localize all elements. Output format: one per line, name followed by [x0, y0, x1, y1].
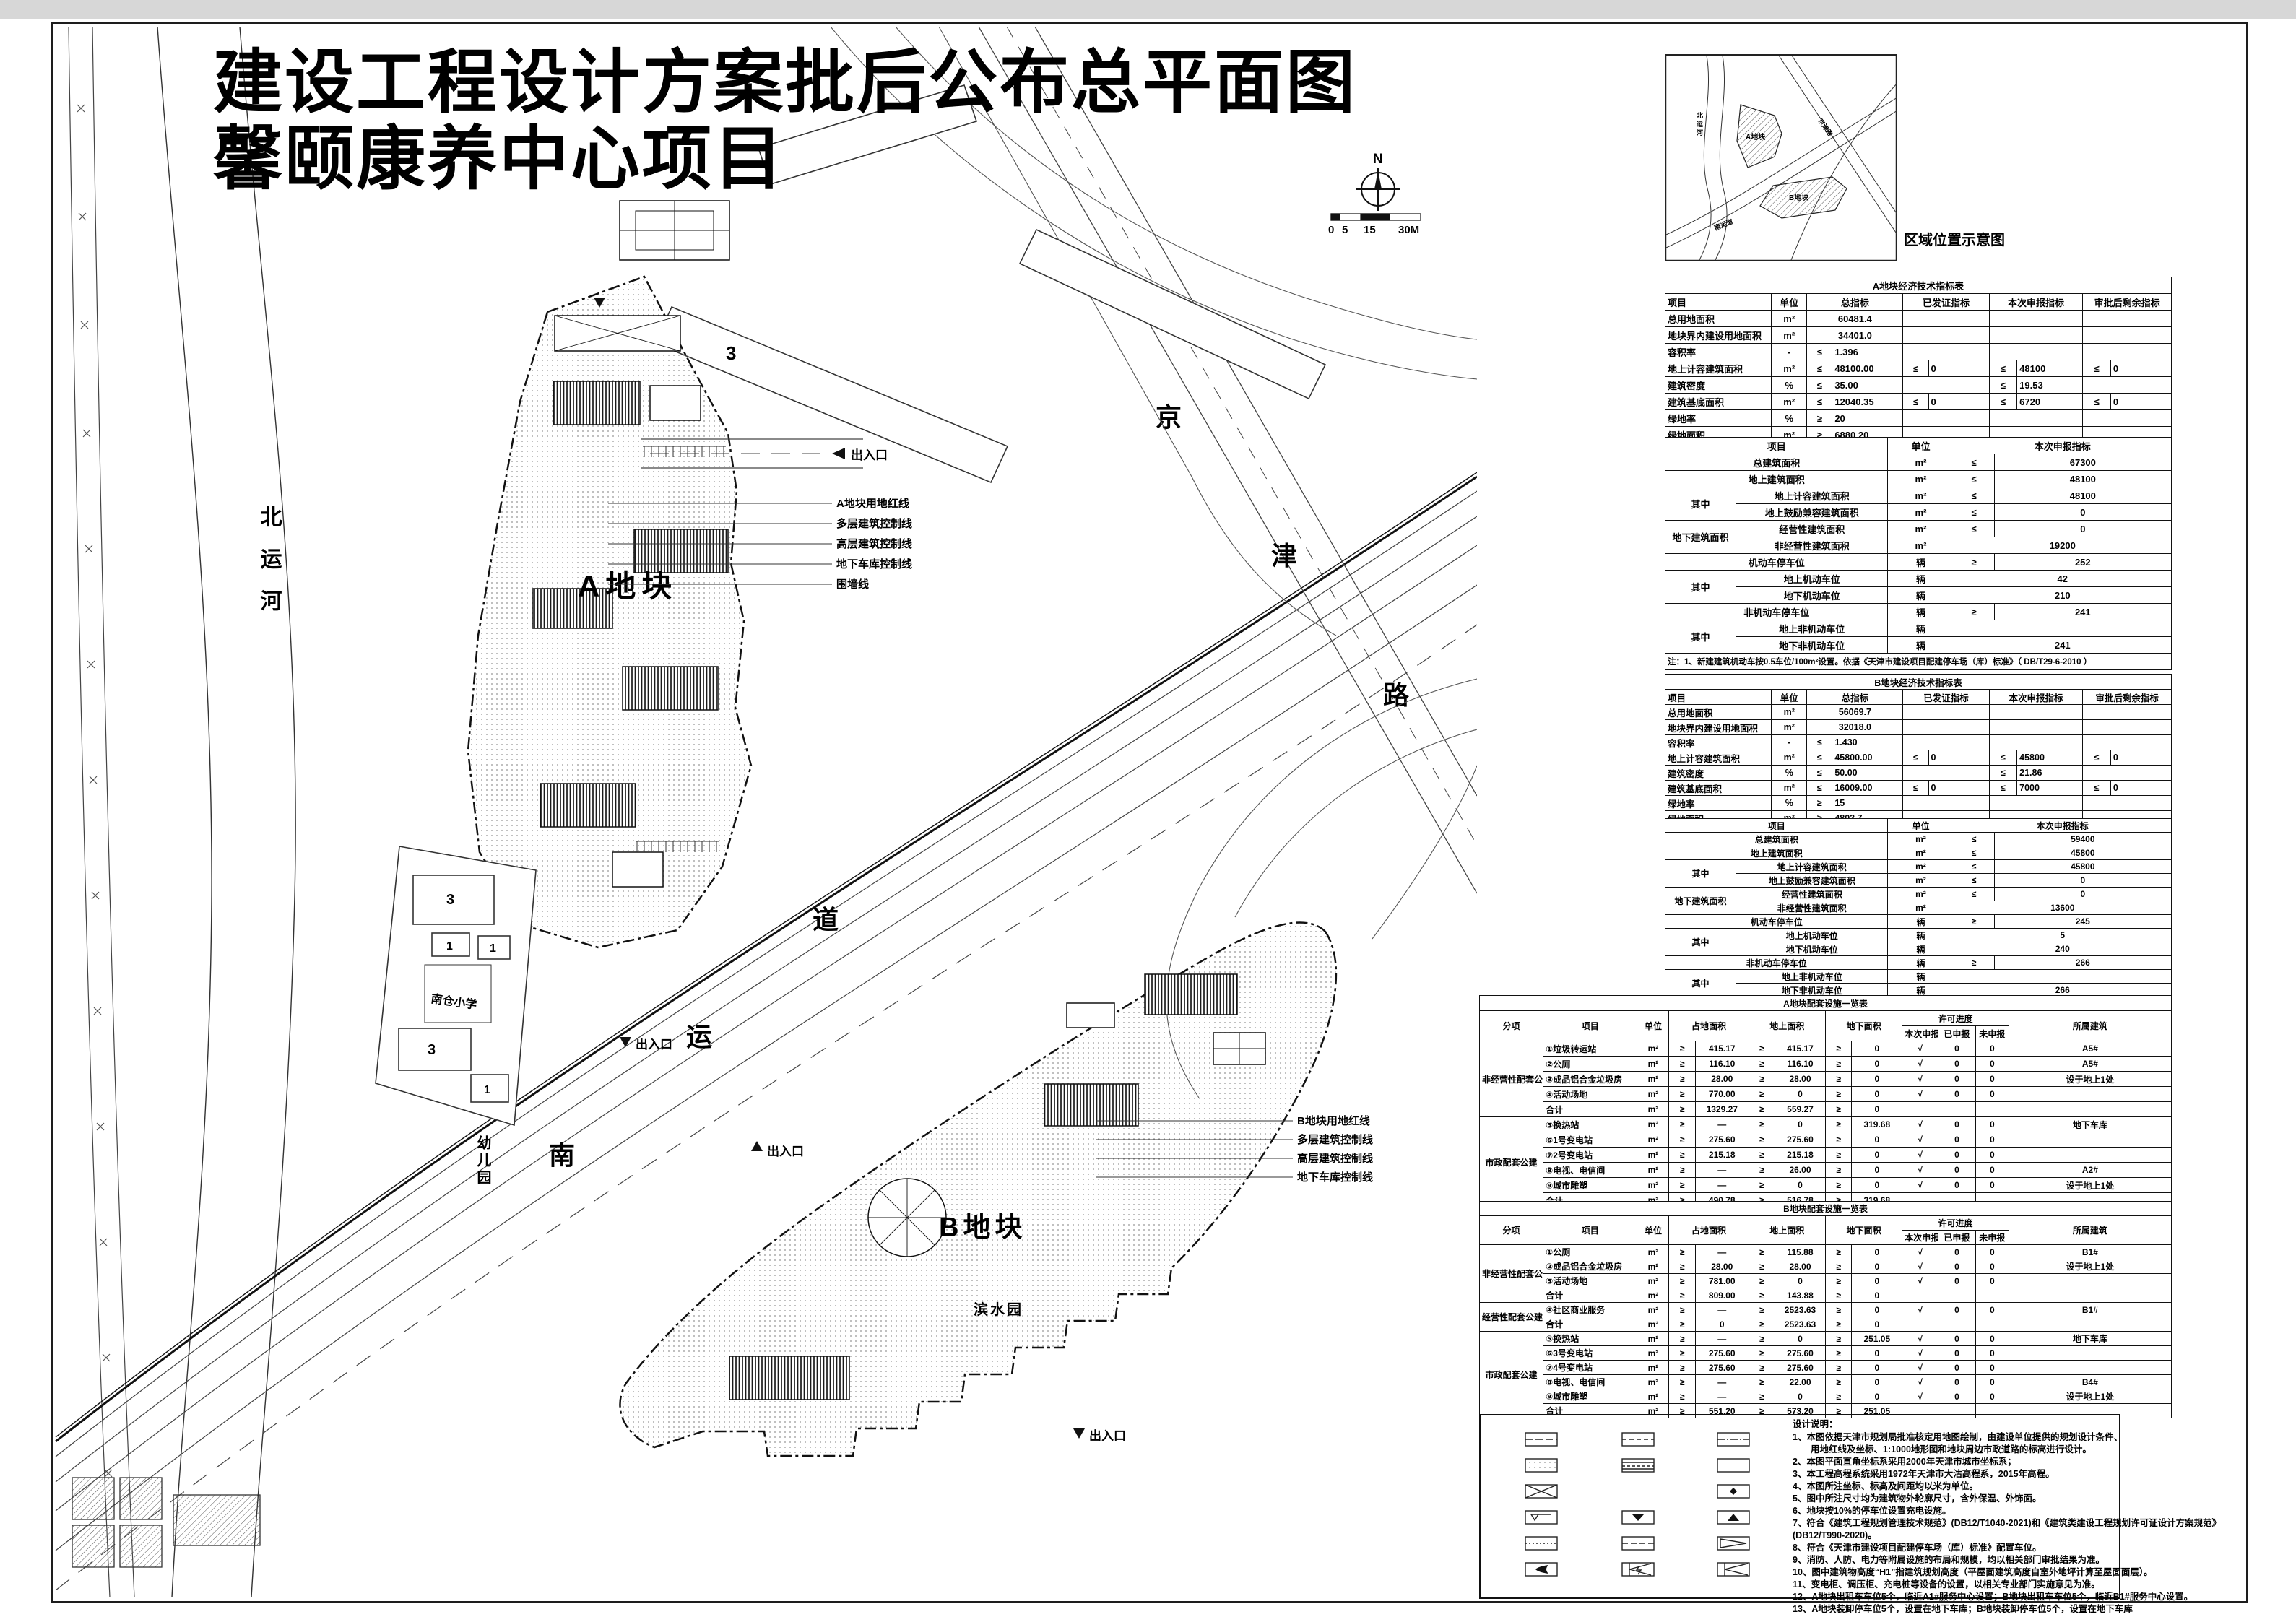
- cell: 地下机动车位: [1736, 587, 1888, 604]
- cell: ≥: [1669, 1346, 1695, 1361]
- cell: 0: [1852, 1346, 1902, 1361]
- cell: 0: [1975, 1178, 2009, 1193]
- cell: 0: [1928, 750, 1989, 766]
- cell: 0: [1975, 1259, 2009, 1274]
- cell: 0: [1975, 1148, 2009, 1163]
- cell: 0: [1852, 1361, 1902, 1375]
- cell: [2083, 327, 2172, 344]
- legend: [1488, 1426, 1791, 1590]
- cell: ≥: [1669, 1274, 1695, 1288]
- cell: 275.60: [1775, 1132, 1826, 1148]
- legend-flag-marker: [1525, 1511, 1557, 1524]
- cell: 0: [2110, 750, 2171, 766]
- cell: ≥: [1749, 1274, 1775, 1288]
- cell: 0: [1975, 1346, 2009, 1361]
- cell: [1903, 766, 1989, 781]
- cell: ≤: [2083, 394, 2111, 410]
- cell: 20: [1832, 410, 1903, 427]
- cell: 28.00: [1775, 1259, 1826, 1274]
- table-row: B地块经济技术指标表: [1665, 675, 2172, 690]
- cell: 注：1、新建建筑机动车按0.5车位/100m²设置。依据《天津市建设项目配建停车…: [1665, 654, 2172, 670]
- cell: 容积率: [1665, 735, 1772, 750]
- entrance-arrow: [620, 1037, 631, 1047]
- table-b-facilities: B地块配套设施一览表分项项目单位占地面积地上面积地下面积许可进度所属建筑本次申报…: [1479, 1201, 2172, 1418]
- header-cell: 单位: [1637, 1011, 1669, 1041]
- cell: ≤: [2083, 781, 2111, 796]
- cell: 其中: [1665, 970, 1736, 997]
- scale-tick: 30M: [1398, 224, 1419, 236]
- cell: [1903, 311, 1989, 327]
- cell: ⑦2号变电站: [1543, 1148, 1637, 1163]
- cell: [1903, 720, 1989, 735]
- cell: ≥: [1669, 1245, 1695, 1259]
- cell: ≥: [1749, 1178, 1775, 1193]
- cell: m²: [1772, 394, 1807, 410]
- cell: ≤: [1903, 781, 1928, 796]
- cell: 67300: [1994, 454, 2171, 471]
- cell: ≥: [1749, 1389, 1775, 1404]
- road-nanyun-char: 运: [686, 1022, 712, 1051]
- header-cell: 本次申报: [1902, 1231, 1938, 1245]
- cell: m²: [1888, 874, 1954, 888]
- cell: ≥: [1749, 1317, 1775, 1332]
- cell: 建筑密度: [1665, 766, 1772, 781]
- cell: ≥: [1825, 1245, 1851, 1259]
- cell: %: [1772, 796, 1807, 811]
- cell: ≥: [1669, 1375, 1695, 1389]
- table-row: 地下机动车位辆210: [1665, 587, 2172, 604]
- cell: m²: [1637, 1303, 1669, 1317]
- cell: [2009, 1274, 2171, 1288]
- cell: √: [1902, 1361, 1938, 1375]
- cell: 0: [1938, 1163, 1976, 1178]
- cell: 116.10: [1775, 1057, 1826, 1072]
- cell: ≥: [1825, 1274, 1851, 1288]
- cell: ≥: [1825, 1332, 1851, 1346]
- design-notes: 设计说明： 1、本图依据天津市规划局批准核定用地图绘制，由建设单位提供的规划设计…: [1793, 1418, 2240, 1616]
- cell: —: [1695, 1389, 1749, 1404]
- cell: ④活动场地: [1543, 1087, 1637, 1102]
- cell: ≥: [1749, 1346, 1775, 1361]
- school-building-no: 1: [484, 1084, 490, 1096]
- cell: m²: [1637, 1057, 1669, 1072]
- region-location-map: A地块 B地块 北运河 京津路 南运道: [1665, 54, 1897, 261]
- cell: m²: [1888, 846, 1954, 860]
- parcel-b-label: B地块: [939, 1213, 1026, 1243]
- cell: ⑥3号变电站: [1543, 1346, 1637, 1361]
- cell: 0: [1975, 1332, 2009, 1346]
- cell: 合计: [1543, 1102, 1637, 1117]
- header-cell: 本次申报指标: [1989, 690, 2083, 705]
- cell: ≤: [1807, 781, 1832, 796]
- entrance-label: 出入口: [767, 1144, 804, 1158]
- cell: 地块界内建设用地面积: [1665, 720, 1772, 735]
- cell: ≤: [1954, 860, 1994, 874]
- note-line: 9、消防、人防、电力等附属设施的布局和规模，均以相关部门审批结果为准。: [1793, 1554, 2240, 1566]
- cell: 设于地上1处: [2009, 1389, 2171, 1404]
- cell: m²: [1637, 1245, 1669, 1259]
- legend-dotted-line: [1525, 1537, 1557, 1550]
- drawing-sheet: { "header": { "title_line1": "建设工程设计方案批后…: [0, 0, 2296, 1622]
- cell: -: [1772, 735, 1807, 750]
- cell: m²: [1637, 1259, 1669, 1274]
- cell: 0: [1938, 1303, 1976, 1317]
- cell: ≤: [1903, 360, 1928, 377]
- title-line-2: 馨颐康养中心项目: [213, 121, 1357, 198]
- header-cell: 占地面积: [1669, 1011, 1749, 1041]
- cell: 辆: [1888, 587, 1954, 604]
- table-row: 地下非机动车位辆241: [1665, 637, 2172, 654]
- cell: 35.00: [1832, 377, 1903, 394]
- table-row: 地上计容建筑面积m²≤45800.00≤0≤45800≤0: [1665, 750, 2172, 766]
- leader-label: 高层建筑控制线: [836, 537, 912, 550]
- table-row: A地块配套设施一览表: [1480, 996, 2172, 1011]
- river-label: 北运河: [257, 506, 282, 631]
- cell: 市政配套公建: [1480, 1117, 1543, 1208]
- table-row: 非经营性建筑面积m²19200: [1665, 537, 2172, 554]
- cell: 781.00: [1695, 1274, 1749, 1288]
- cell: 地上非机动车位: [1736, 620, 1888, 637]
- header-cell: 本次申报指标: [1954, 819, 2171, 833]
- cell: [1902, 1102, 1938, 1117]
- cell: [1938, 1317, 1976, 1332]
- cell: 0: [1938, 1087, 1976, 1102]
- table-row: ⑨城市雕塑m²≥—≥0≥0√00设于地上1处: [1480, 1389, 2172, 1404]
- leader-label: B地块用地红线: [1297, 1114, 1370, 1127]
- cell: ≥: [1669, 1041, 1695, 1057]
- cell: [1954, 620, 2171, 637]
- legend-plain-box: [1717, 1459, 1749, 1472]
- cell: 地上鼓励兼容建筑面积: [1736, 504, 1888, 521]
- scan-band: [0, 0, 2296, 19]
- table-row: 项目单位本次申报指标: [1665, 819, 2172, 833]
- cell: ≥: [1954, 554, 1994, 571]
- cell: 59400: [1994, 833, 2171, 846]
- header-cell: 分项: [1480, 1011, 1543, 1041]
- cell: A5#: [2009, 1041, 2171, 1057]
- cell: 0: [1975, 1389, 2009, 1404]
- cell: [1989, 311, 2083, 327]
- cell: 6720: [2017, 394, 2083, 410]
- note-line: 8、符合《天津市建设项目配建停车场（库）标准》配置车位。: [1793, 1542, 2240, 1554]
- cell: 28.00: [1695, 1072, 1749, 1087]
- cell: ≤: [1989, 766, 2017, 781]
- parcel-a-label: A地块: [578, 569, 677, 603]
- cell: 地块界内建设用地面积: [1665, 327, 1772, 344]
- road-nanyun-char: 道: [813, 905, 839, 934]
- cell: %: [1772, 410, 1807, 427]
- entrance-arrow: [832, 448, 845, 459]
- cell: 0: [1975, 1375, 2009, 1389]
- table-row: 建筑密度%≤50.00≤21.86: [1665, 766, 2172, 781]
- table-row: 地块界内建设用地面积m²32018.0: [1665, 720, 2172, 735]
- cell: [1903, 410, 1989, 427]
- cell: ≤: [1954, 471, 1994, 487]
- cell: 0: [1775, 1332, 1826, 1346]
- cell: m²: [1637, 1178, 1669, 1193]
- cell: [2009, 1288, 2171, 1303]
- cell: 建筑密度: [1665, 377, 1772, 394]
- table-row: ⑨城市雕塑m²≥—≥0≥0√00设于地上1处: [1480, 1178, 2172, 1193]
- cell: √: [1902, 1057, 1938, 1072]
- cell: 总用地面积: [1665, 705, 1772, 720]
- cell: 0: [1852, 1178, 1902, 1193]
- cell: m²: [1772, 327, 1807, 344]
- cell: [2083, 766, 2172, 781]
- cell: ≥: [1954, 604, 1994, 620]
- cell: 非经营性配套公建: [1480, 1245, 1543, 1303]
- cell: 地上计容建筑面积: [1736, 487, 1888, 504]
- cell: 0: [1975, 1245, 2009, 1259]
- cell: 48100: [2017, 360, 2083, 377]
- cell: 21.86: [2017, 766, 2083, 781]
- cell: [2083, 705, 2172, 720]
- cell: 48100: [1994, 471, 2171, 487]
- legend-boundary-solid-dash: [1525, 1433, 1557, 1446]
- cell: ≥: [1825, 1117, 1851, 1132]
- table-row: 合计m²≥809.00≥143.88≥0: [1480, 1288, 2172, 1303]
- cell: m²: [1888, 504, 1954, 521]
- header-cell: 已发证指标: [1903, 690, 1989, 705]
- road-nanyun-char: 南: [549, 1140, 575, 1170]
- cell: 设于地上1处: [2009, 1072, 2171, 1087]
- cell: 2523.63: [1775, 1317, 1826, 1332]
- cell: m²: [1888, 901, 1954, 915]
- cell: 0: [1938, 1178, 1976, 1193]
- cell: 非机动车停车位: [1665, 956, 1888, 970]
- cell: [1989, 344, 2083, 360]
- cell: 42: [1954, 571, 2171, 587]
- school-building-no: 1: [446, 940, 453, 953]
- cell: 其中: [1665, 620, 1736, 654]
- cell: ≥: [1825, 1072, 1851, 1087]
- cell: 559.27: [1775, 1102, 1826, 1117]
- north-label: N: [1373, 152, 1383, 167]
- cell: 115.88: [1775, 1245, 1826, 1259]
- cell: 辆: [1888, 554, 1954, 571]
- table-row: 分项项目单位占地面积地上面积地下面积许可进度所属建筑: [1480, 1216, 2172, 1231]
- cell: ≤: [1989, 394, 2017, 410]
- cell: 辆: [1888, 942, 1954, 956]
- table-row: 总用地面积m²60481.4: [1665, 311, 2172, 327]
- cell: ≥: [1749, 1332, 1775, 1346]
- cell: m²: [1888, 537, 1954, 554]
- table-row: 分项项目单位占地面积地上面积地下面积许可进度所属建筑: [1480, 1011, 2172, 1026]
- cell: [2083, 720, 2172, 735]
- cell: 0: [1852, 1288, 1902, 1303]
- cell: 275.60: [1695, 1361, 1749, 1375]
- region-map-frame: [1665, 55, 1897, 261]
- cell: 32018.0: [1807, 720, 1903, 735]
- cell: [2009, 1346, 2171, 1361]
- table-row: 地块界内建设用地面积m²34401.0: [1665, 327, 2172, 344]
- table-row: 其中地上计容建筑面积m²≤45800: [1665, 860, 2172, 874]
- table-row: 机动车停车位辆≥252: [1665, 554, 2172, 571]
- legend-cross-box: [1525, 1485, 1557, 1498]
- cell: ≥: [1825, 1132, 1851, 1148]
- cell: 45800: [2017, 750, 2083, 766]
- leader-label: 多层建筑控制线: [1297, 1133, 1373, 1146]
- cell: [1902, 1288, 1938, 1303]
- cell: 0: [1975, 1041, 2009, 1057]
- cell: ≥: [1825, 1288, 1851, 1303]
- cell: ≤: [1989, 750, 2017, 766]
- table-row: 建筑密度%≤35.00≤19.53: [1665, 377, 2172, 394]
- cell: 0: [1775, 1389, 1826, 1404]
- entrance-arrow: [751, 1141, 763, 1151]
- cell: 56069.7: [1807, 705, 1903, 720]
- cell: [2009, 1317, 2171, 1332]
- cell: m²: [1637, 1317, 1669, 1332]
- entrance-label: 出入口: [636, 1037, 672, 1051]
- cell: —: [1695, 1332, 1749, 1346]
- header-cell: 项目: [1665, 690, 1772, 705]
- cell: √: [1902, 1087, 1938, 1102]
- table-row: 非机动车停车位辆≥241: [1665, 604, 2172, 620]
- cell: ≥: [1825, 1389, 1851, 1404]
- cell: ≥: [1749, 1361, 1775, 1375]
- cell: m²: [1637, 1072, 1669, 1087]
- table-row: ⑦2号变电站m²≥215.18≥215.18≥0√00: [1480, 1148, 2172, 1163]
- header-cell: 总指标: [1807, 294, 1903, 311]
- cell: ③成品铝合金垃圾房: [1543, 1072, 1637, 1087]
- cell: ①公厕: [1543, 1245, 1637, 1259]
- note-line: 2、本图平面直角坐标系采用2000年天津市城市坐标系；: [1793, 1456, 2240, 1468]
- header-cell: 已发证指标: [1903, 294, 1989, 311]
- cell: 0: [1852, 1274, 1902, 1288]
- table-row: 市政配套公建⑤换热站m²≥—≥0≥251.05√00地下车库: [1480, 1332, 2172, 1346]
- cell: m²: [1772, 360, 1807, 377]
- cell: ⑧电视、电信间: [1543, 1375, 1637, 1389]
- table-row: 非经营性配套公建①垃圾转运站m²≥415.17≥415.17≥0√00A5#: [1480, 1041, 2172, 1057]
- header-cell: 所属建筑: [2009, 1216, 2171, 1245]
- cell: 0: [1928, 394, 1989, 410]
- table-row: 地上鼓励兼容建筑面积m²≤0: [1665, 504, 2172, 521]
- cell: ≤: [1954, 504, 1994, 521]
- cell: ≥: [1954, 956, 1994, 970]
- cell: 非机动车停车位: [1665, 604, 1888, 620]
- cell: 地上机动车位: [1736, 571, 1888, 587]
- cell: 28.00: [1695, 1259, 1749, 1274]
- legend-triangle-up: [1717, 1511, 1749, 1524]
- cell: 5: [1954, 929, 2171, 942]
- table-row: 总建筑面积m²≤67300: [1665, 454, 2172, 471]
- north-arrow-icon: [1356, 168, 1400, 211]
- cell: √: [1902, 1072, 1938, 1087]
- header-cell: B地块经济技术指标表: [1665, 675, 2172, 690]
- cell: ≥: [1749, 1041, 1775, 1057]
- table-row: 项目单位总指标已发证指标本次申报指标审批后剩余指标: [1665, 690, 2172, 705]
- cell: 0: [1975, 1361, 2009, 1375]
- cell: 0: [1975, 1072, 2009, 1087]
- cell: ≥: [1825, 1317, 1851, 1332]
- header-cell: 项目: [1543, 1216, 1637, 1245]
- cell: 12040.35: [1832, 394, 1903, 410]
- legend-boundary-dashdot: [1717, 1433, 1749, 1446]
- cell: [1903, 705, 1989, 720]
- entrance-arrow: [1073, 1428, 1085, 1439]
- cell: ⑧电视、电信间: [1543, 1163, 1637, 1178]
- cell: 0: [1695, 1317, 1749, 1332]
- header-cell: 单位: [1772, 690, 1807, 705]
- cell: ≥: [1669, 1117, 1695, 1132]
- header-cell: 审批后剩余指标: [2083, 294, 2172, 311]
- cell: 0: [1938, 1346, 1976, 1361]
- cell: √: [1902, 1148, 1938, 1163]
- cell: 0: [1994, 504, 2171, 521]
- cell: 143.88: [1775, 1288, 1826, 1303]
- cell: ≥: [1669, 1072, 1695, 1087]
- cell: ≤: [1807, 750, 1832, 766]
- cell: 60481.4: [1807, 311, 1903, 327]
- cell: ≥: [1749, 1288, 1775, 1303]
- cell: 415.17: [1695, 1041, 1749, 1057]
- cell: 非经营性建筑面积: [1736, 901, 1888, 915]
- table-row: 其中地上机动车位辆5: [1665, 929, 2172, 942]
- table-row: ③活动场地m²≥781.00≥0≥0√00: [1480, 1274, 2172, 1288]
- table-b-indicators-main: B地块经济技术指标表项目单位总指标已发证指标本次申报指标审批后剩余指标总用地面积…: [1665, 674, 2172, 826]
- cell: [1902, 1317, 1938, 1332]
- cell: 0: [1938, 1057, 1976, 1072]
- cell: 116.10: [1695, 1057, 1749, 1072]
- cell: ≥: [1807, 796, 1832, 811]
- cell: [1903, 377, 1989, 394]
- cell: 0: [1975, 1087, 2009, 1102]
- cell: 辆: [1888, 637, 1954, 654]
- table-row: 其中地上非机动车位辆: [1665, 620, 2172, 637]
- cell: 0: [1852, 1163, 1902, 1178]
- cell: 其中: [1665, 571, 1736, 604]
- scale-tick: 5: [1342, 224, 1348, 236]
- leader-label: 地下车库控制线: [1297, 1171, 1373, 1184]
- cell: m²: [1637, 1389, 1669, 1404]
- cell: ≤: [1954, 833, 1994, 846]
- cell: 0: [1775, 1087, 1826, 1102]
- cell: [2083, 796, 2172, 811]
- cell: 50.00: [1832, 766, 1903, 781]
- cell: 经营性建筑面积: [1736, 521, 1888, 537]
- cell: 地上计容建筑面积: [1665, 750, 1772, 766]
- school: [376, 846, 536, 1125]
- cell: 241: [1994, 604, 2171, 620]
- table-row: 容积率-≤1.430: [1665, 735, 2172, 750]
- cell: %: [1772, 377, 1807, 394]
- cell: m²: [1637, 1041, 1669, 1057]
- cell: 15: [1832, 796, 1903, 811]
- cell: 其中: [1665, 860, 1736, 888]
- cell: 1.396: [1832, 344, 1903, 360]
- cell: ≥: [1669, 1259, 1695, 1274]
- cell: 251.05: [1852, 1332, 1902, 1346]
- cell: 地上计容建筑面积: [1665, 360, 1772, 377]
- entrance-label: 出入口: [851, 448, 888, 462]
- cell: ⑦4号变电站: [1543, 1361, 1637, 1375]
- cell: 合计: [1543, 1317, 1637, 1332]
- cell: ≤: [1954, 888, 1994, 901]
- cell: m²: [1888, 860, 1954, 874]
- cell: m²: [1772, 705, 1807, 720]
- cell: ≥: [1669, 1087, 1695, 1102]
- header-cell: 项目: [1665, 819, 1888, 833]
- cell: [2083, 735, 2172, 750]
- cell: ②成品铝合金垃圾房: [1543, 1259, 1637, 1274]
- header-cell: 本次申报指标: [1989, 294, 2083, 311]
- cell: 总用地面积: [1665, 311, 1772, 327]
- cell: ④社区商业服务: [1543, 1303, 1637, 1317]
- cell: ≤: [1807, 735, 1832, 750]
- cell: 0: [1938, 1375, 1976, 1389]
- cell: [1903, 327, 1989, 344]
